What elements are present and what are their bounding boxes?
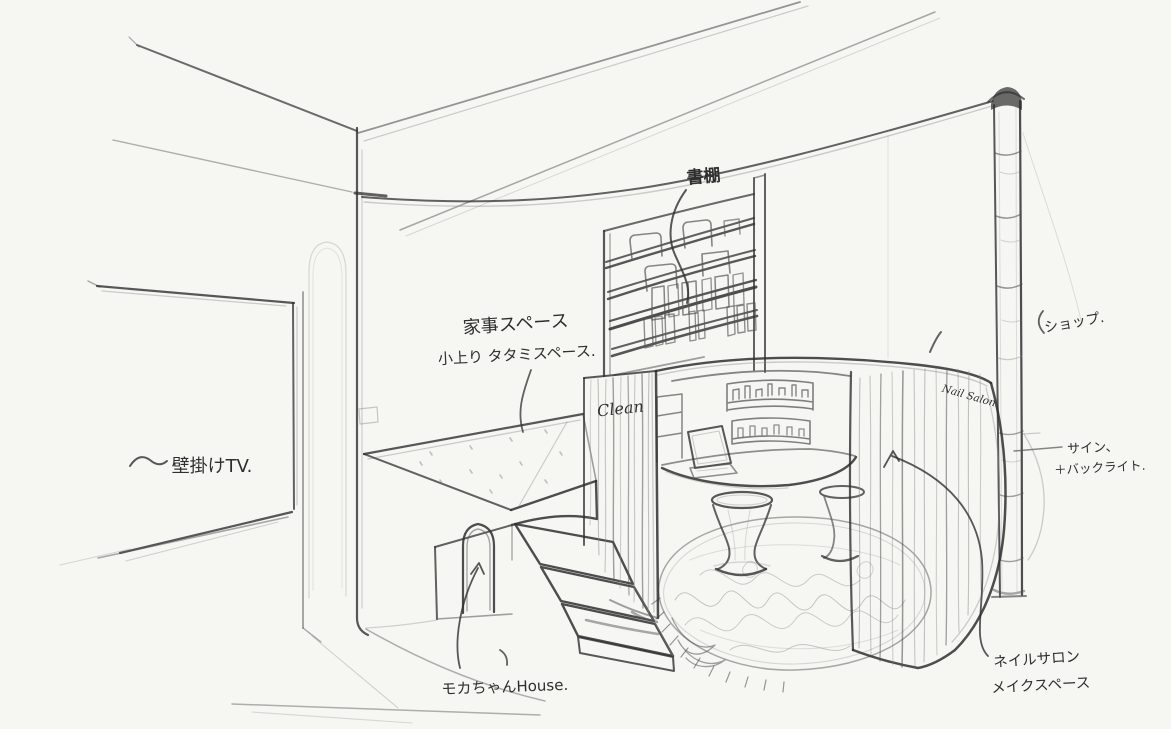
floor-lines — [232, 620, 545, 723]
round-rug — [652, 517, 931, 692]
tv-squiggle — [130, 457, 167, 466]
doorway-arch — [303, 242, 378, 642]
tatami-platform — [364, 414, 597, 525]
makeup-space-label: メイクスペース — [991, 674, 1091, 696]
display-shelves — [727, 380, 813, 444]
mocha-house-tick — [500, 650, 507, 665]
stool-front — [712, 492, 772, 575]
right-panel-tick — [930, 332, 941, 352]
left-wall-corner — [355, 128, 386, 635]
wall-tv-label: 壁掛けTV. — [172, 456, 253, 477]
nail-salon-arrowhead — [884, 451, 899, 467]
tv-panel — [60, 281, 297, 565]
laptop — [688, 426, 737, 478]
raised-tatami-label: 小上り タタミスペース. — [438, 342, 596, 368]
mocha-house-label: モカちゃんHouse. — [441, 676, 568, 698]
entrance-pillar — [988, 87, 1082, 597]
sign-backlight-label: ＋バックライト. — [1054, 458, 1146, 478]
clean-label: Clean — [596, 397, 644, 421]
back-wall-top-edge — [362, 101, 993, 358]
mocha-house-leader — [457, 568, 478, 668]
interior-sketch: 書棚 家事スペース 小上り タタミスペース. 壁掛けTV. ショップ. サイン、… — [0, 0, 1171, 729]
reception-counter — [656, 358, 991, 489]
sign-label: サイン、 — [1067, 440, 1119, 458]
right-partition-panel — [850, 368, 1006, 668]
sketch-page: 書棚 家事スペース 小上り タタミスペース. 壁掛けTV. ショップ. サイン、… — [0, 0, 1171, 729]
ceiling-lines — [113, 2, 940, 236]
nail-salon-jp-label: ネイルサロン — [993, 648, 1081, 671]
bookshelf-label: 書棚 — [686, 165, 722, 189]
stairs — [512, 524, 674, 671]
housework-space-label: 家事スペース — [462, 310, 569, 338]
shop-label: ショップ. — [1043, 310, 1105, 336]
annotation-leaders — [130, 190, 1062, 668]
